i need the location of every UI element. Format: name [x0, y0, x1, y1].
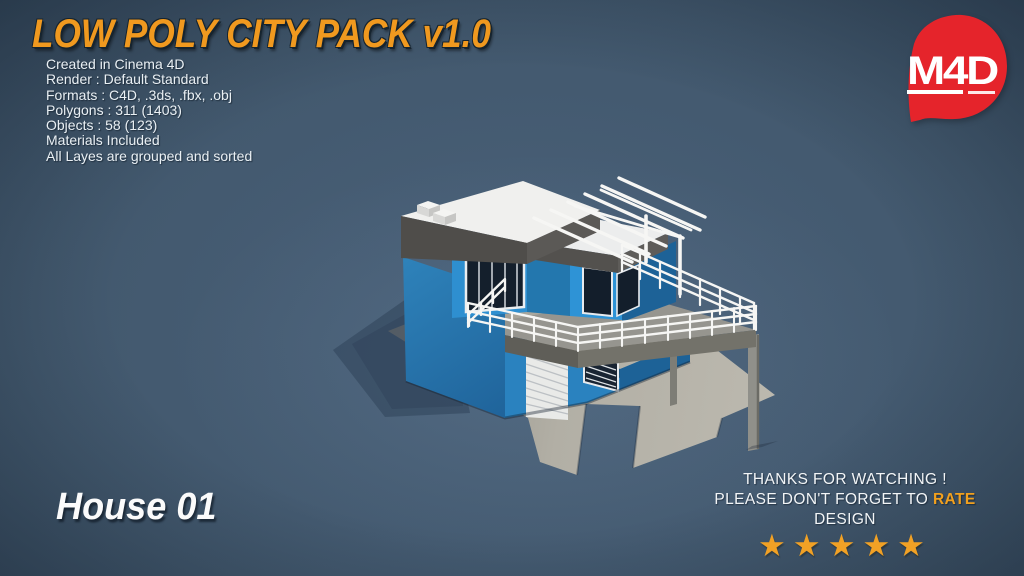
- side-window: [617, 265, 639, 316]
- footer-block: THANKS FOR WATCHING ! PLEASE DON'T FORGE…: [690, 470, 1000, 556]
- logo-underline: [907, 90, 963, 94]
- rate-word: RATE: [933, 491, 976, 508]
- spec-line: Formats : C4D, .3ds, .fbx, .obj: [46, 88, 252, 103]
- five-star-rating: ★★★★★: [690, 536, 1000, 556]
- model-name: House 01: [56, 486, 217, 529]
- thanks-line: THANKS FOR WATCHING !: [690, 470, 1000, 490]
- m4d-logo: M4D: [898, 12, 1010, 124]
- door: [583, 267, 612, 316]
- spec-line: Materials Included: [46, 133, 252, 148]
- spec-line: Created in Cinema 4D: [46, 57, 252, 72]
- pack-title: LOW POLY CITY PACK v1.0: [32, 12, 491, 56]
- spec-line: All Layes are grouped and sorted: [46, 149, 252, 164]
- logo-text: M4D: [907, 49, 998, 93]
- poster: LOW POLY CITY PACK v1.0 Created in Cinem…: [0, 0, 1024, 576]
- spec-list: Created in Cinema 4D Render : Default St…: [46, 57, 252, 164]
- rate-line: PLEASE DON'T FORGET TO RATE DESIGN: [690, 490, 1000, 530]
- logo-tagline-text: [968, 91, 995, 94]
- rate-line-suffix: DESIGN: [814, 511, 876, 528]
- spec-line: Polygons : 311 (1403): [46, 103, 252, 118]
- rate-line-prefix: PLEASE DON'T FORGET TO: [714, 491, 933, 508]
- spec-line: Render : Default Standard: [46, 72, 252, 87]
- spec-line: Objects : 58 (123): [46, 118, 252, 133]
